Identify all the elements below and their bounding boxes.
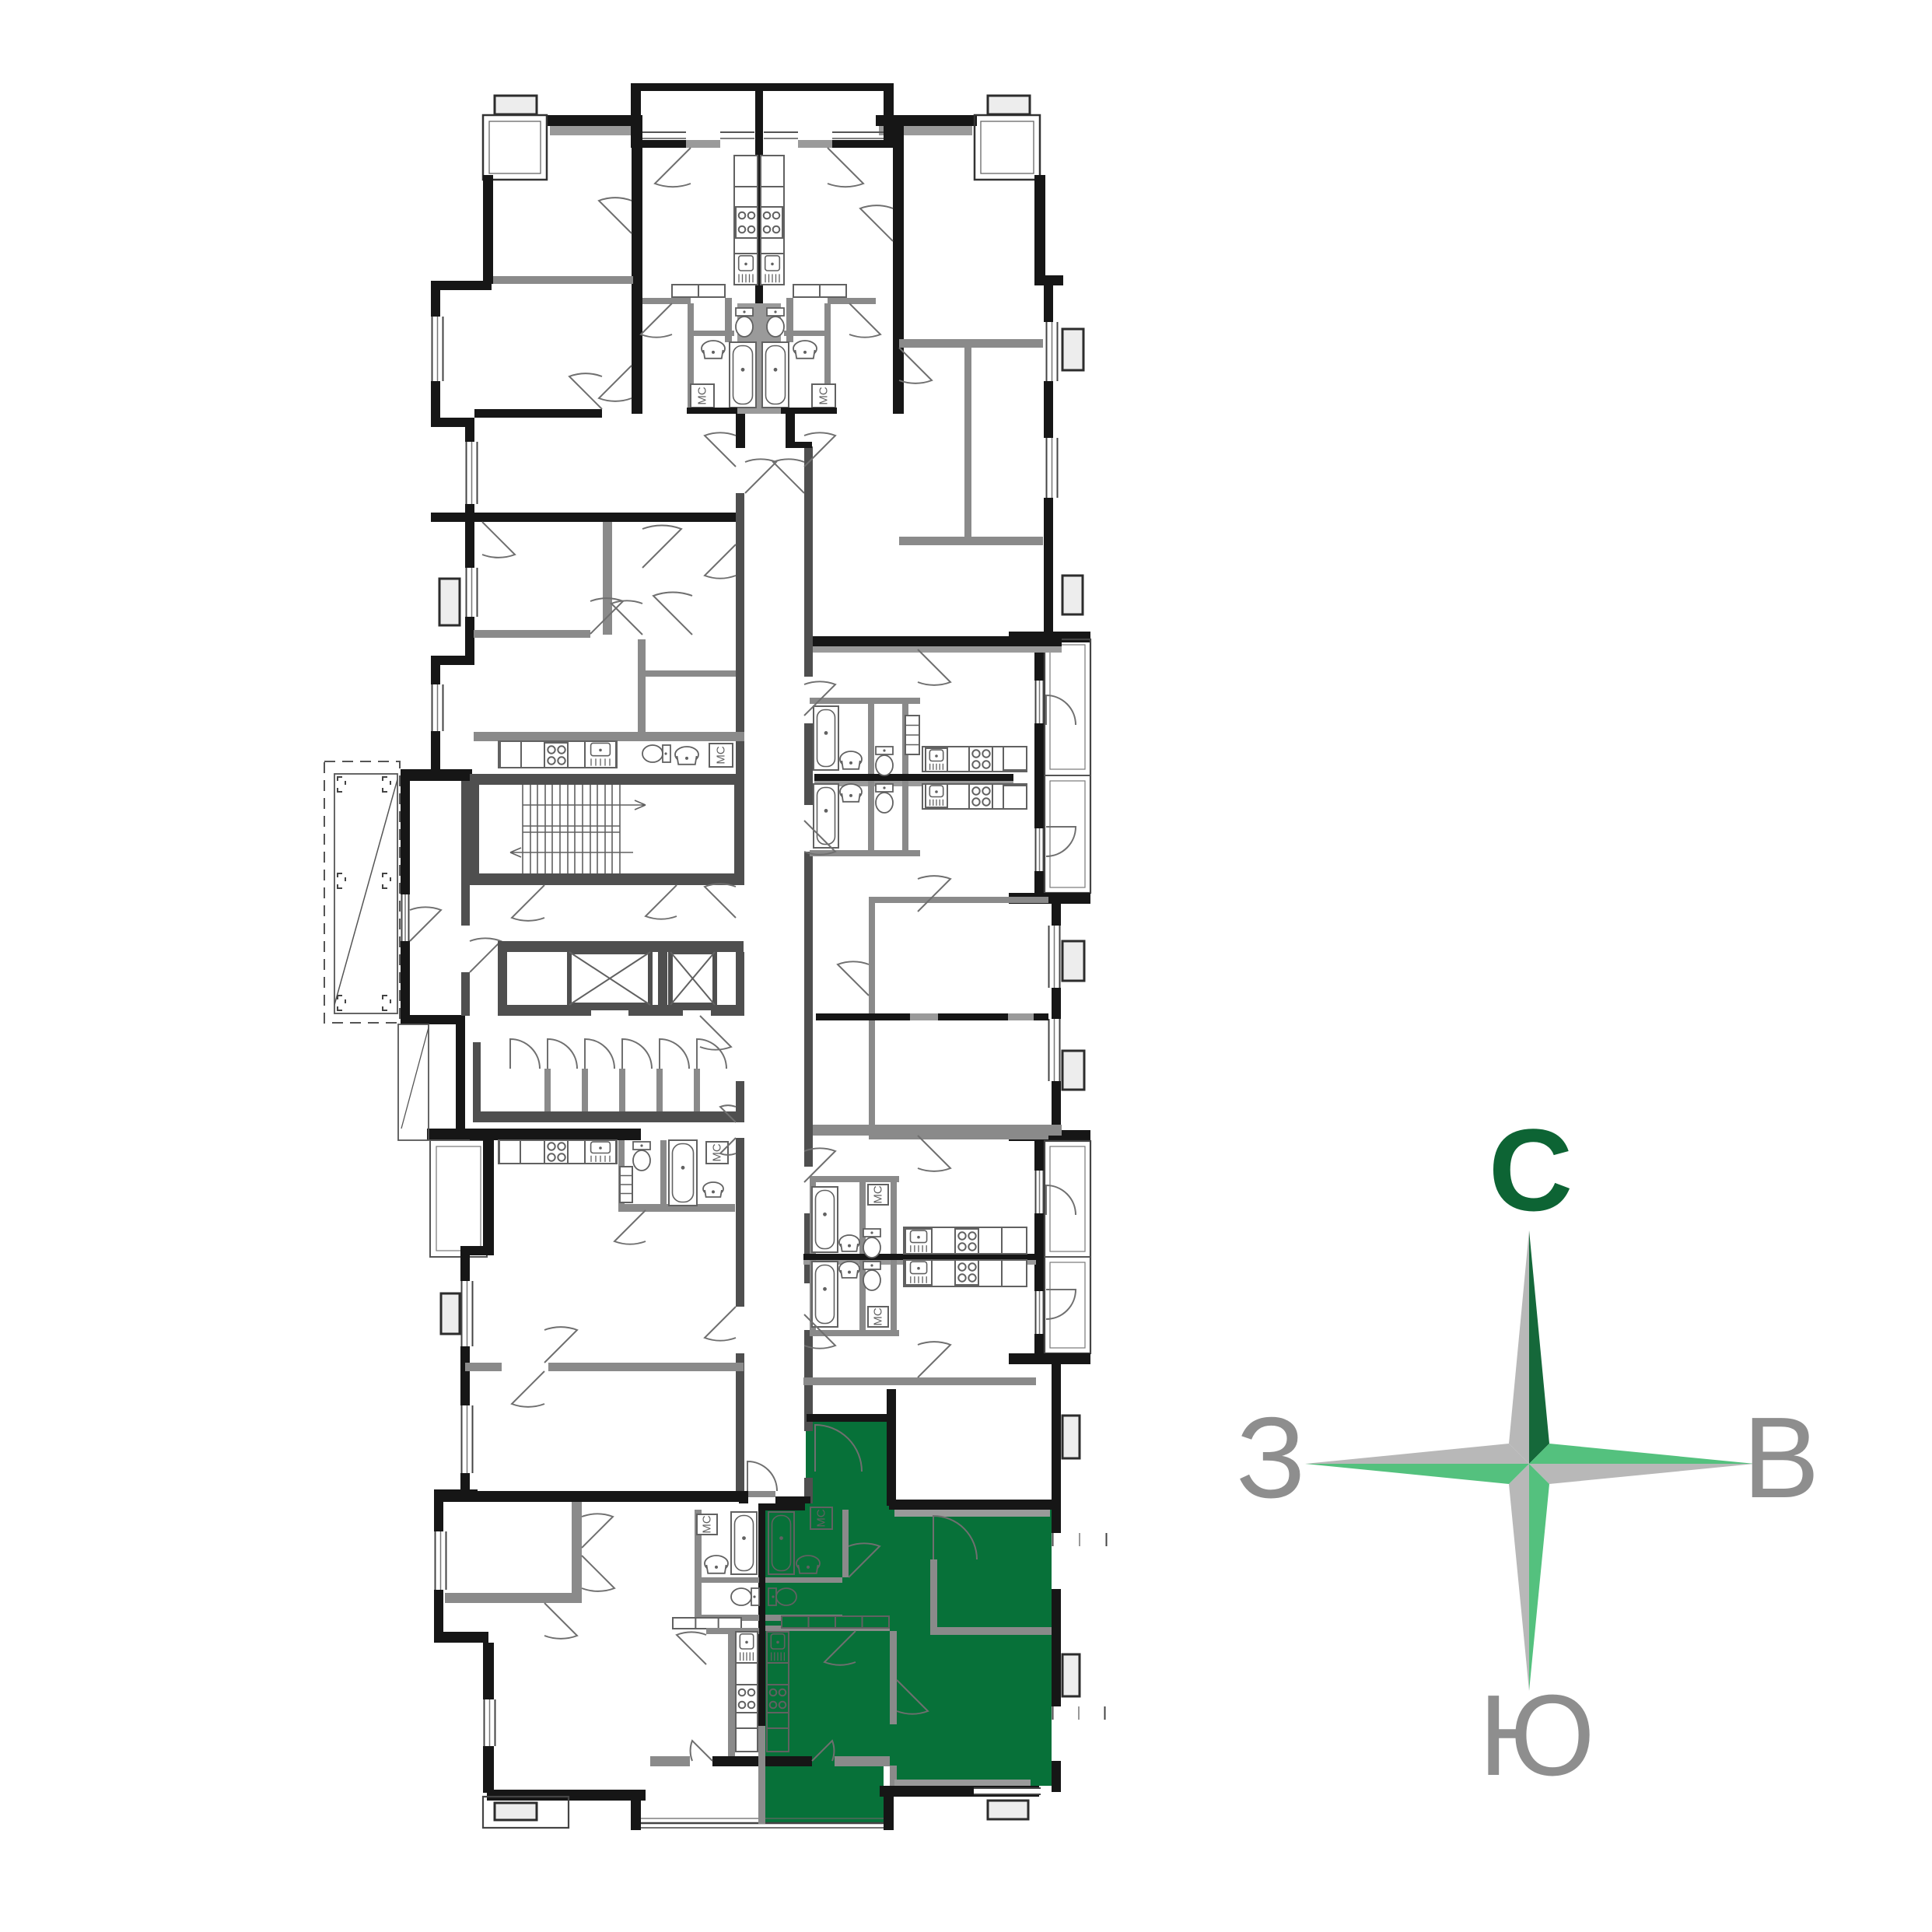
- svg-text:С: С: [1489, 1104, 1573, 1235]
- svg-text:В: В: [1743, 1394, 1820, 1522]
- svg-text:МС: МС: [872, 1307, 885, 1325]
- svg-text:МС: МС: [696, 387, 709, 404]
- svg-text:З: З: [1236, 1394, 1305, 1522]
- svg-text:МС: МС: [701, 1515, 714, 1533]
- svg-text:МС: МС: [817, 387, 831, 404]
- svg-text:МС: МС: [715, 746, 728, 764]
- svg-text:МС: МС: [815, 1509, 828, 1527]
- svg-text:Ю: Ю: [1479, 1671, 1595, 1800]
- svg-text:МС: МС: [872, 1185, 885, 1203]
